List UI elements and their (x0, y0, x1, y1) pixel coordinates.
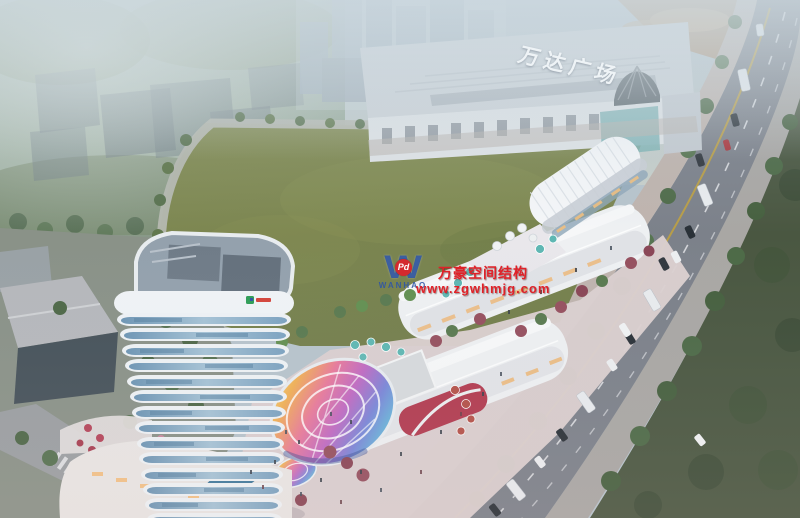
watermark-company-text: 万豪空间结构 (438, 263, 528, 283)
watermark: W Pd WANHAO 万豪空间结构 www.zgwhmjg.com (366, 250, 596, 310)
aerial-rendering-scene: 万达广场 W Pd WANHAO 万豪空间结构 www.zgwhmjg.com (0, 0, 800, 518)
watermark-badge-icon: Pd (395, 259, 412, 276)
watermark-url-text: www.zgwhmjg.com (416, 281, 550, 296)
